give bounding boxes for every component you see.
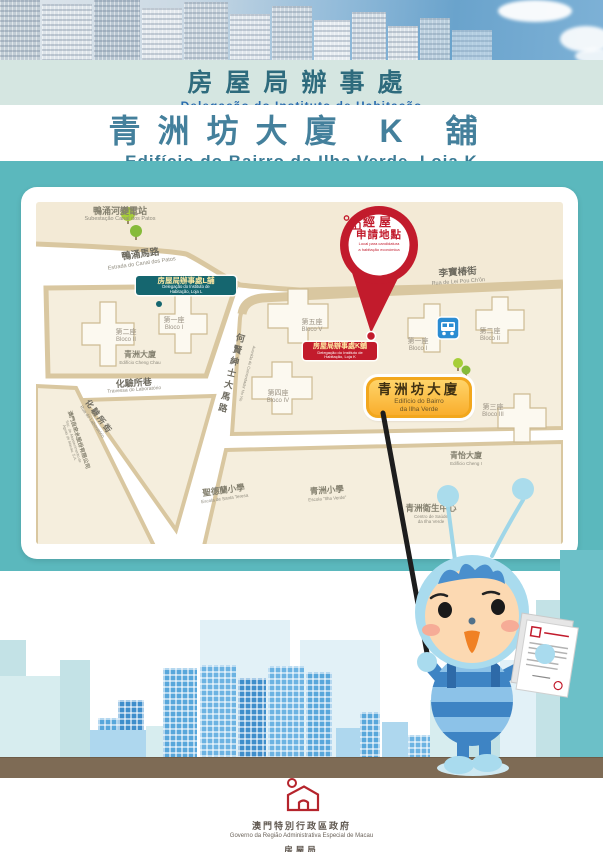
label-bairro-ilha-verde: 青洲坊大廈 Edifício do Bairro da Ilha Verde: [366, 377, 472, 418]
photo-building: [352, 12, 386, 60]
building-label-left-b1: 第一座 Bloco I: [152, 317, 196, 332]
title-band: 青洲坊大廈 K 舖 Edifício do Bairro da Ilha Ver…: [0, 105, 603, 161]
building-label-right-b5: 第五座 Bloco V: [290, 319, 334, 334]
map-card: 鴨涌河變電站 Subestação Canal dos Patos 鴨涌馬路 E…: [21, 187, 578, 559]
building-label-right-b3: 第三座 Bloco III: [471, 404, 515, 419]
skyline-building: [268, 666, 304, 757]
ih-house-logo: [280, 778, 324, 812]
photo-building: [0, 0, 40, 60]
photo-building: [42, 4, 92, 60]
bureau-title-zh: 房屋局辦事處: [0, 63, 603, 99]
photo-building: [142, 8, 182, 60]
poi-substation: 鴨涌河變電站 Subestação Canal dos Patos: [54, 206, 186, 222]
map: 鴨涌河變電站 Subestação Canal dos Patos 鴨涌馬路 E…: [36, 202, 563, 544]
label-loja-k: 房屋局辦事處K舖 Delegação do Instituto de Habit…: [303, 342, 377, 360]
skyline-building: [60, 660, 90, 757]
building-label-right-b1: 第一座 Bloco I: [396, 338, 440, 353]
building-label-left-b2: 第二座 Bloco II: [104, 329, 148, 344]
building-cheng-i: 青怡大廈 Edifício Cheng I: [434, 452, 498, 466]
skyline-building: [238, 678, 266, 757]
skyline-building: [500, 660, 540, 757]
skyline-building: [163, 668, 197, 757]
skyline-building: [560, 550, 603, 757]
photo-building: [388, 26, 418, 60]
gov-title-zh: 澳門特別行政區政府: [0, 819, 603, 832]
photo-building: [184, 2, 228, 60]
house-icon: [342, 215, 362, 230]
cloud: [498, 0, 572, 22]
skyline-building: [430, 700, 464, 757]
city-skyline: [0, 572, 603, 757]
location-title-zh: 青洲坊大廈 K 舖: [0, 106, 603, 152]
bureau-name-zh: 房屋局: [0, 844, 603, 852]
photo-building: [94, 0, 140, 60]
skyline-building: [382, 722, 408, 757]
skyline-building: [360, 712, 380, 757]
photo-building: [272, 6, 312, 60]
photo-building: [230, 14, 270, 60]
footer: 澳門特別行政區政府 Governo da Região Administrati…: [0, 778, 603, 852]
skyline-building: [0, 676, 60, 757]
photo-building: [314, 20, 350, 60]
ground-bar: [0, 757, 603, 779]
building-label-right-b4: 第四座 Bloco IV: [256, 390, 300, 405]
building-cheng-chau: 青洲大廈 Edifício Cheng Chau: [108, 351, 172, 365]
header-band: 房屋局辦事處 Delegação do Instituto de Habitaç…: [0, 60, 603, 105]
photo-building: [420, 18, 450, 60]
poi-health-centre: 青洲衛生中心 Centro de Saúde da Ilha Verde: [394, 504, 468, 524]
photo-building: [452, 30, 492, 60]
label-loja-l: 房屋局辦事處L舖 Delegação do Instituto de Habit…: [136, 276, 236, 295]
pin-content: 經屋 申請地點 Local para candidatura a habitaç…: [342, 215, 416, 252]
sky-photo-band: [0, 0, 603, 60]
skyline-building: [306, 672, 332, 757]
skyline-building: [200, 665, 236, 757]
poster: 房屋局辦事處 Delegação do Instituto de Habitaç…: [0, 0, 603, 852]
bus-icon: [437, 317, 459, 339]
building-label-right-b2: 第二座 Bloco II: [468, 328, 512, 343]
gov-title-pt: Governo da Região Administrativa Especia…: [0, 833, 603, 839]
